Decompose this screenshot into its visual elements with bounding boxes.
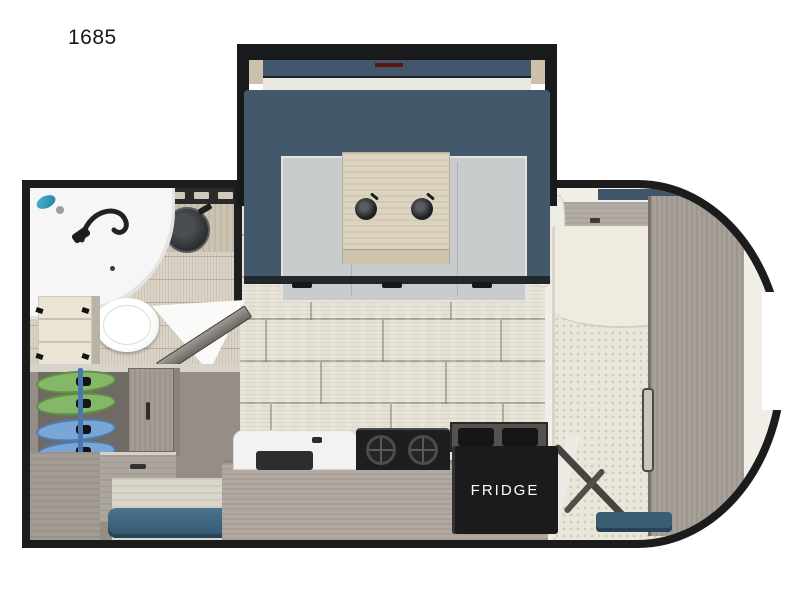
dinette-slideout xyxy=(237,44,557,288)
slideout-top-wall xyxy=(237,44,557,60)
floorplan-canvas: 1685 xyxy=(0,0,800,600)
cupholder-handle-icon xyxy=(370,192,379,200)
cupholder-handle-icon xyxy=(426,192,435,200)
cupholder-icon xyxy=(355,198,377,220)
dinette-table xyxy=(342,152,450,264)
bench-foot xyxy=(472,282,492,288)
front-window-gap xyxy=(762,292,794,410)
cupholder-icon xyxy=(411,198,433,220)
slideout-trim-band xyxy=(263,78,531,90)
bench-foot xyxy=(292,282,312,288)
table-edge-band xyxy=(343,249,449,264)
bench-foot xyxy=(382,282,402,288)
slideout-corner-block xyxy=(529,60,545,84)
model-label: 1685 xyxy=(68,26,117,50)
slideout-seal-mark xyxy=(375,63,403,67)
